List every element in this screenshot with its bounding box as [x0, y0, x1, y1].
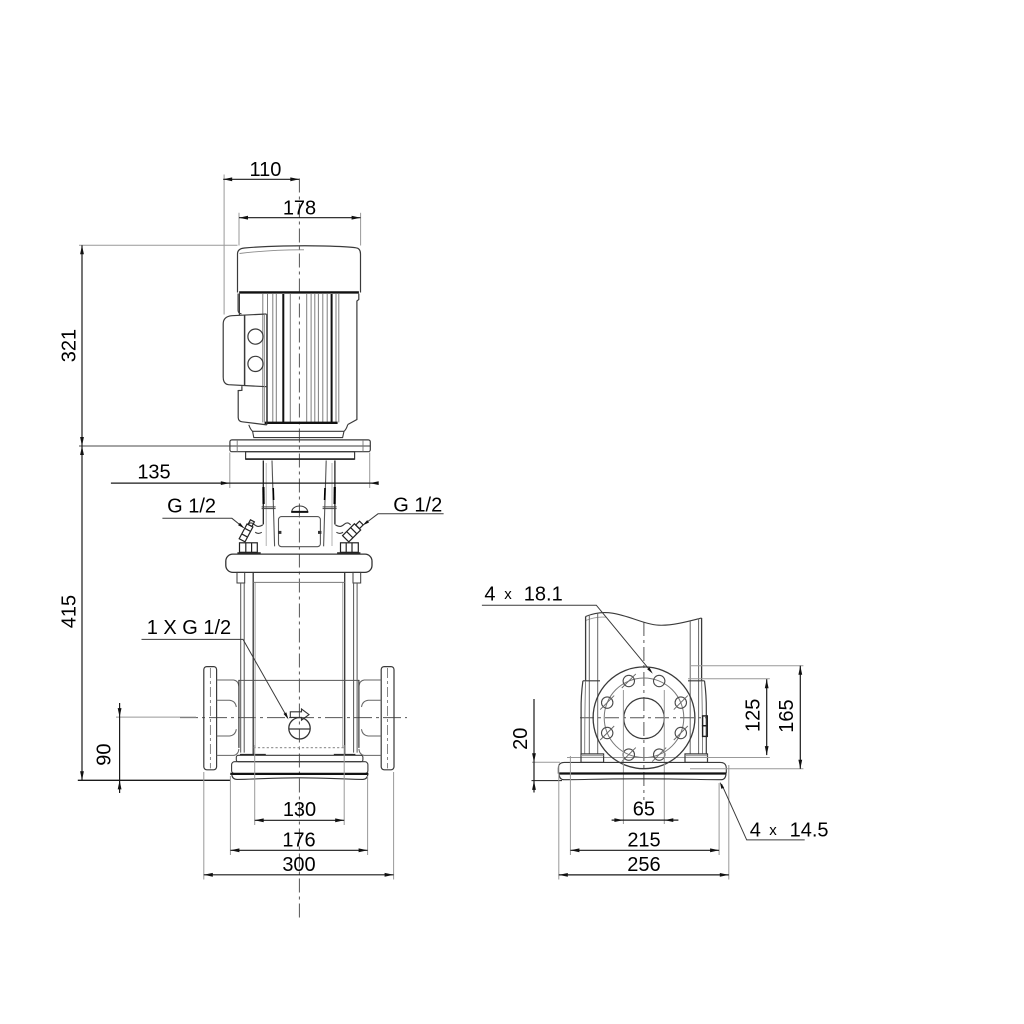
- svg-text:90: 90: [94, 743, 116, 765]
- svg-text:x: x: [769, 822, 777, 839]
- svg-text:215: 215: [627, 829, 660, 851]
- svg-text:x: x: [504, 586, 512, 603]
- svg-text:14.5: 14.5: [790, 820, 829, 842]
- svg-text:321: 321: [59, 329, 81, 362]
- svg-text:415: 415: [59, 595, 81, 628]
- svg-text:165: 165: [776, 699, 798, 732]
- svg-text:4: 4: [750, 820, 761, 842]
- svg-text:178: 178: [283, 197, 316, 219]
- svg-text:135: 135: [137, 461, 170, 483]
- svg-text:300: 300: [282, 854, 315, 876]
- svg-text:20: 20: [510, 728, 532, 750]
- svg-text:1 X G 1/2: 1 X G 1/2: [147, 617, 232, 639]
- svg-text:176: 176: [282, 829, 315, 851]
- svg-text:18.1: 18.1: [524, 584, 563, 606]
- svg-text:4: 4: [484, 584, 495, 606]
- svg-text:65: 65: [633, 799, 655, 821]
- svg-text:125: 125: [743, 699, 765, 732]
- svg-text:G 1/2: G 1/2: [167, 495, 216, 517]
- svg-text:130: 130: [283, 799, 316, 821]
- svg-text:110: 110: [250, 159, 282, 181]
- svg-text:G 1/2: G 1/2: [393, 495, 442, 517]
- svg-text:256: 256: [627, 854, 660, 876]
